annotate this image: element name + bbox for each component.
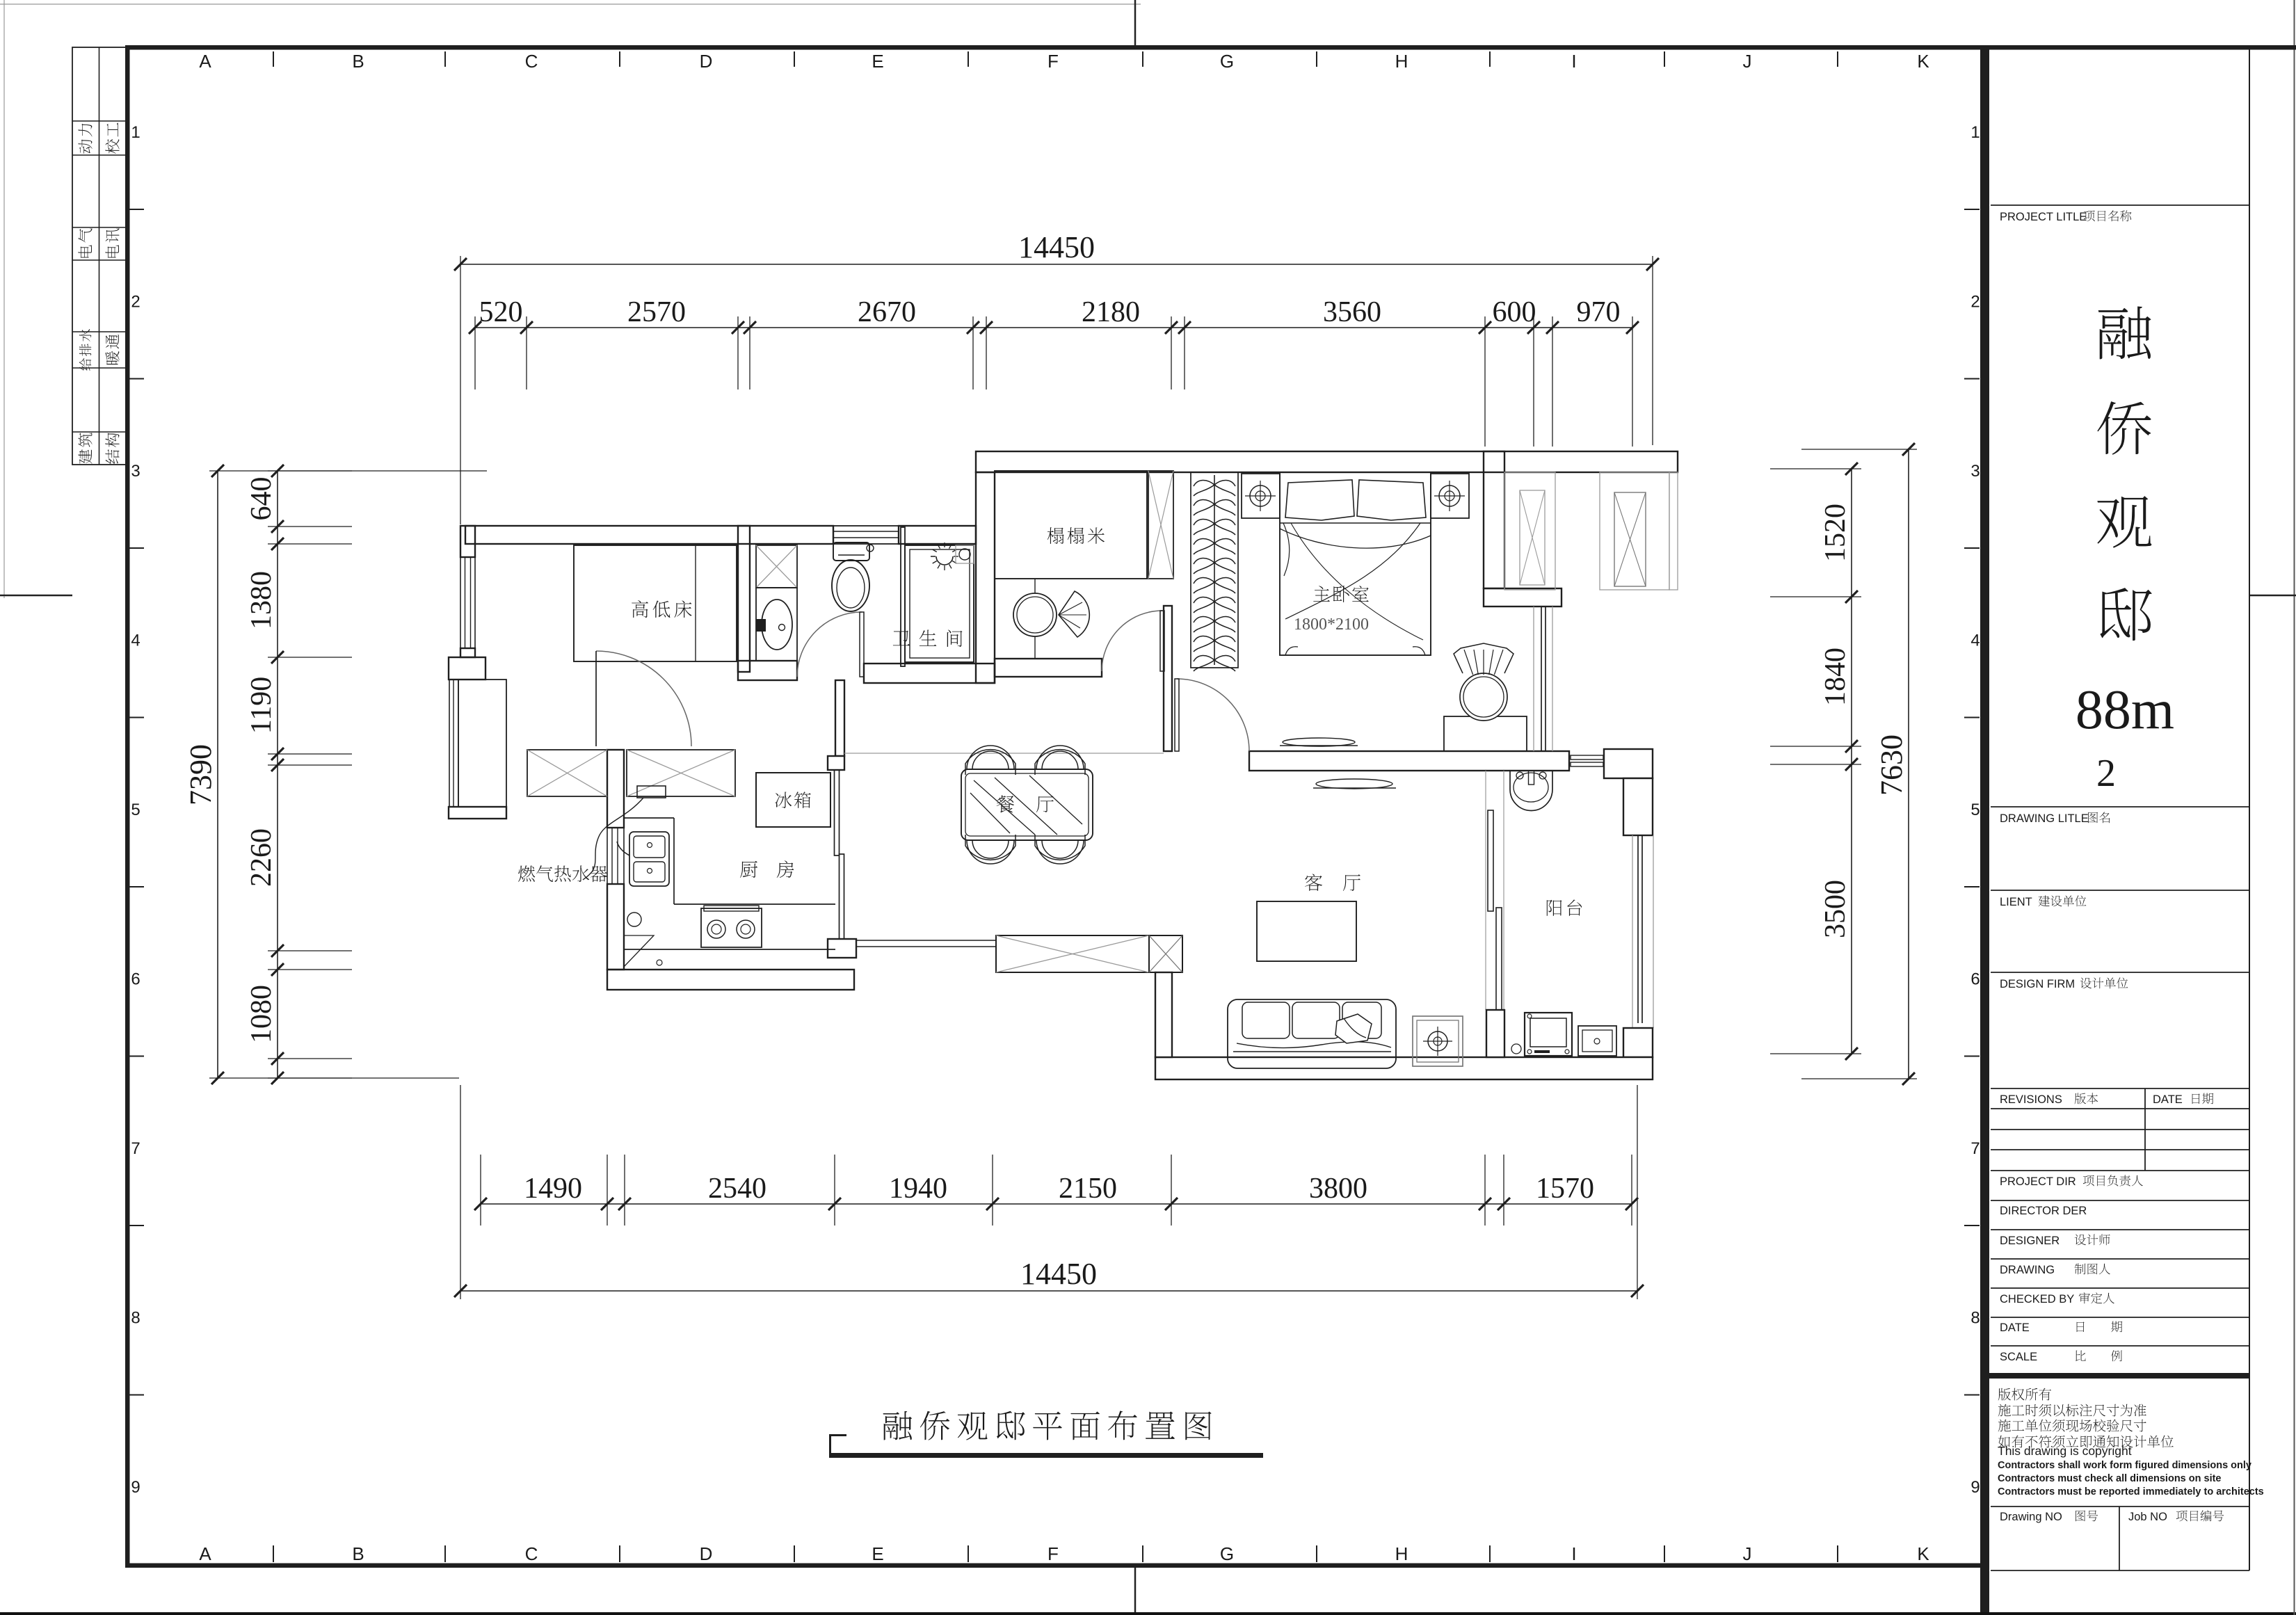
svg-text:8: 8 xyxy=(131,1309,140,1328)
svg-text:G: G xyxy=(1220,1543,1234,1564)
svg-text:7630: 7630 xyxy=(1874,734,1909,796)
svg-text:Contractors must check all dim: Contractors must check all dimensions on… xyxy=(1998,1473,2222,1484)
svg-text:9: 9 xyxy=(1970,1478,1980,1497)
svg-text:SCALE: SCALE xyxy=(2000,1351,2037,1363)
svg-text:1190: 1190 xyxy=(246,677,278,734)
svg-text:DIRECTOR DER: DIRECTOR DER xyxy=(2000,1205,2087,1217)
svg-text:Job NO: Job NO xyxy=(2128,1511,2167,1523)
svg-text:1490: 1490 xyxy=(524,1173,582,1205)
svg-text:C: C xyxy=(525,1543,538,1564)
svg-text:E: E xyxy=(872,51,883,72)
svg-text:4: 4 xyxy=(131,632,140,650)
svg-text:1840: 1840 xyxy=(1820,648,1852,706)
svg-text:Contractors shall work form fi: Contractors shall work form figured dime… xyxy=(1998,1460,2251,1471)
svg-text:520: 520 xyxy=(479,296,523,328)
svg-text:6: 6 xyxy=(131,970,140,989)
svg-text:8: 8 xyxy=(1970,1309,1980,1328)
svg-text:C: C xyxy=(525,51,538,72)
svg-text:DESIGNER: DESIGNER xyxy=(2000,1235,2060,1247)
svg-text:1520: 1520 xyxy=(1820,504,1852,562)
svg-text:DRAWING LITLE: DRAWING LITLE xyxy=(2000,812,2089,825)
svg-text:9: 9 xyxy=(131,1478,140,1497)
svg-text:2: 2 xyxy=(2096,752,2116,795)
svg-text:3800: 3800 xyxy=(1309,1173,1367,1205)
svg-text:This drawing is copyright: This drawing is copyright xyxy=(1998,1444,2132,1458)
svg-text:2180: 2180 xyxy=(1082,296,1140,328)
svg-text:5: 5 xyxy=(131,801,140,819)
svg-text:J: J xyxy=(1743,51,1752,72)
svg-text:7: 7 xyxy=(1970,1139,1980,1158)
svg-text:3: 3 xyxy=(1970,462,1980,481)
svg-text:E: E xyxy=(872,1543,883,1564)
svg-text:Drawing NO: Drawing NO xyxy=(2000,1511,2062,1523)
svg-text:A: A xyxy=(199,1543,211,1564)
svg-text:K: K xyxy=(1917,1543,1929,1564)
svg-text:B: B xyxy=(352,51,364,72)
svg-text:Contractors must be reported i: Contractors must be reported immediately… xyxy=(1998,1486,2264,1497)
svg-text:4: 4 xyxy=(1970,632,1980,650)
svg-text:DATE: DATE xyxy=(2153,1093,2183,1106)
svg-text:K: K xyxy=(1917,51,1929,72)
svg-text:1570: 1570 xyxy=(1536,1173,1594,1205)
svg-text:2540: 2540 xyxy=(708,1173,766,1205)
svg-text:1380: 1380 xyxy=(246,571,278,629)
svg-text:2570: 2570 xyxy=(627,296,686,328)
svg-text:F: F xyxy=(1047,51,1059,72)
svg-text:J: J xyxy=(1743,1543,1752,1564)
svg-text:600: 600 xyxy=(1493,296,1536,328)
svg-text:2: 2 xyxy=(1970,293,1980,312)
svg-text:2: 2 xyxy=(131,293,140,312)
svg-text:3: 3 xyxy=(131,462,140,481)
svg-text:2260: 2260 xyxy=(246,828,278,887)
svg-text:B: B xyxy=(352,1543,364,1564)
svg-text:6: 6 xyxy=(1970,970,1980,989)
svg-text:1: 1 xyxy=(1970,123,1980,142)
svg-text:I: I xyxy=(1571,51,1576,72)
svg-text:D: D xyxy=(700,51,713,72)
svg-text:14450: 14450 xyxy=(1018,230,1095,264)
svg-text:CHECKED BY: CHECKED BY xyxy=(2000,1293,2074,1305)
svg-text:DATE: DATE xyxy=(2000,1321,2030,1334)
svg-text:1080: 1080 xyxy=(246,985,278,1043)
svg-text:PROJECT DIR: PROJECT DIR xyxy=(2000,1175,2076,1188)
svg-text:88m: 88m xyxy=(2076,680,2174,741)
svg-text:1800*2100: 1800*2100 xyxy=(1294,616,1369,634)
svg-text:14450: 14450 xyxy=(1020,1257,1097,1291)
svg-text:DESIGN FIRM: DESIGN FIRM xyxy=(2000,978,2075,990)
svg-text:7: 7 xyxy=(131,1139,140,1158)
svg-text:D: D xyxy=(700,1543,713,1564)
svg-text:7390: 7390 xyxy=(184,744,218,805)
svg-text:PROJECT LITLE: PROJECT LITLE xyxy=(2000,211,2087,223)
svg-text:I: I xyxy=(1571,1543,1576,1564)
svg-text:2670: 2670 xyxy=(858,296,916,328)
svg-text:G: G xyxy=(1220,51,1234,72)
svg-text:1: 1 xyxy=(131,123,140,142)
svg-text:2150: 2150 xyxy=(1059,1173,1117,1205)
svg-text:3560: 3560 xyxy=(1323,296,1381,328)
svg-text:F: F xyxy=(1047,1543,1059,1564)
svg-text:REVISIONS: REVISIONS xyxy=(2000,1093,2062,1106)
svg-text:H: H xyxy=(1395,1543,1408,1564)
svg-text:1940: 1940 xyxy=(889,1173,947,1205)
svg-text:970: 970 xyxy=(1577,296,1621,328)
svg-text:LIENT: LIENT xyxy=(2000,896,2032,908)
svg-text:DRAWING: DRAWING xyxy=(2000,1264,2055,1276)
svg-text:640: 640 xyxy=(246,477,278,521)
svg-text:3500: 3500 xyxy=(1820,880,1852,938)
svg-text:A: A xyxy=(199,51,211,72)
svg-text:5: 5 xyxy=(1970,801,1980,819)
svg-text:H: H xyxy=(1395,51,1408,72)
